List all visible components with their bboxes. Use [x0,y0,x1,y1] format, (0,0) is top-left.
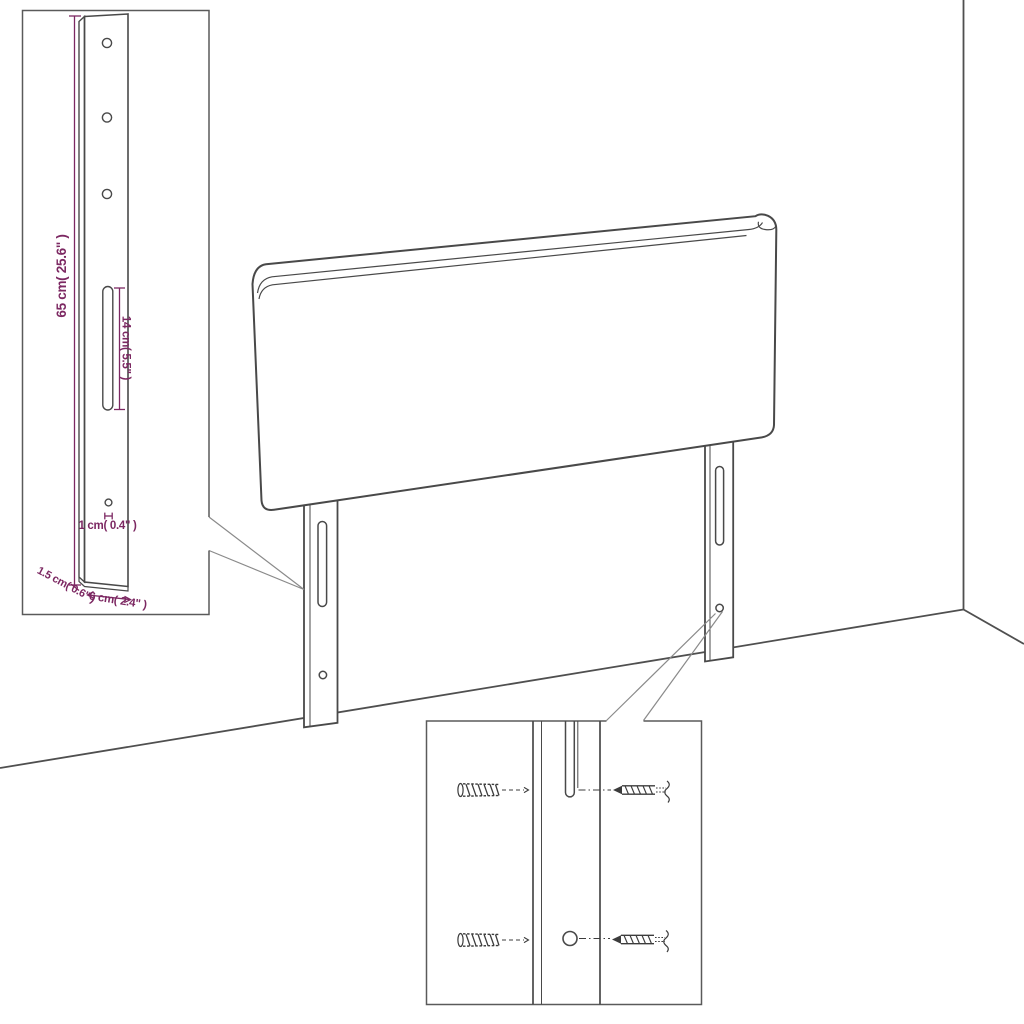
leader-arrow [524,937,529,942]
dim-label-leg-height: 65 cm( 25.6" ) [54,234,69,317]
callout-line [209,517,304,590]
headboard-panel [253,214,777,510]
leg-bar-hole-2 [102,113,111,122]
leg-detail-inset: 65 cm( 25.6" ) 14 cm( 5.5" ) 1 cm( 0.4" … [23,11,210,615]
screw-threads [624,935,652,943]
callout-line [644,612,723,721]
left-leg-body [304,490,338,728]
right-leg-body [705,440,733,662]
screw-break-squiggle [665,781,670,803]
screw-bottom [612,931,668,953]
leg-bar-hole-1 [102,38,111,47]
inset-box-border [427,721,702,1005]
dim-label-slot-length: 14 cm( 5.5" ) [120,316,132,381]
floor-line-right [964,610,1024,645]
leg-bar-slot [103,287,113,411]
anchor-top-edge [463,934,499,935]
callout-lines-left-inset [209,517,304,590]
dim-label-leg-width: 6 cm( 2.4" ) [88,591,148,612]
right-mounting-leg [705,440,733,662]
mounting-detail-inset [427,721,702,1005]
screw-tip [613,786,622,794]
diagram-page: 65 cm( 25.6" ) 14 cm( 5.5" ) 1 cm( 0.4" … [0,0,1024,1024]
wall-anchor-bottom [458,934,529,947]
anchor-collar [458,934,463,947]
anchor-top-edge [463,784,499,785]
leg-bar [79,14,128,591]
leader-arrow [524,787,529,792]
alignment-leaders [579,790,612,939]
wall-anchor-top [458,784,529,797]
screw-top [613,781,669,803]
screw-tip [612,935,621,943]
inset-slot [566,721,575,797]
inset-leg-strip [533,721,600,1005]
anchor-ribs [466,784,499,796]
leg-bar-bottom-hole [105,499,112,506]
inset-hole [563,932,577,946]
leg-bar-hole-3 [102,189,111,198]
dimension-lines [69,16,131,603]
anchor-ribs [466,934,499,946]
leg-bar-side-face [79,17,85,583]
callout-line [209,551,304,590]
callout-line [607,614,716,721]
screw-break-squiggle [664,931,669,953]
dim-label-hole-diameter: 1 cm( 0.4" ) [78,520,137,532]
left-mounting-leg [304,490,338,728]
floor-line-left [0,610,964,769]
anchor-collar [458,784,463,797]
panel-outline [253,214,777,510]
headboard-assembly-diagram: 65 cm( 25.6" ) 14 cm( 5.5" ) 1 cm( 0.4" … [0,0,1024,1024]
screw-threads [625,786,653,794]
